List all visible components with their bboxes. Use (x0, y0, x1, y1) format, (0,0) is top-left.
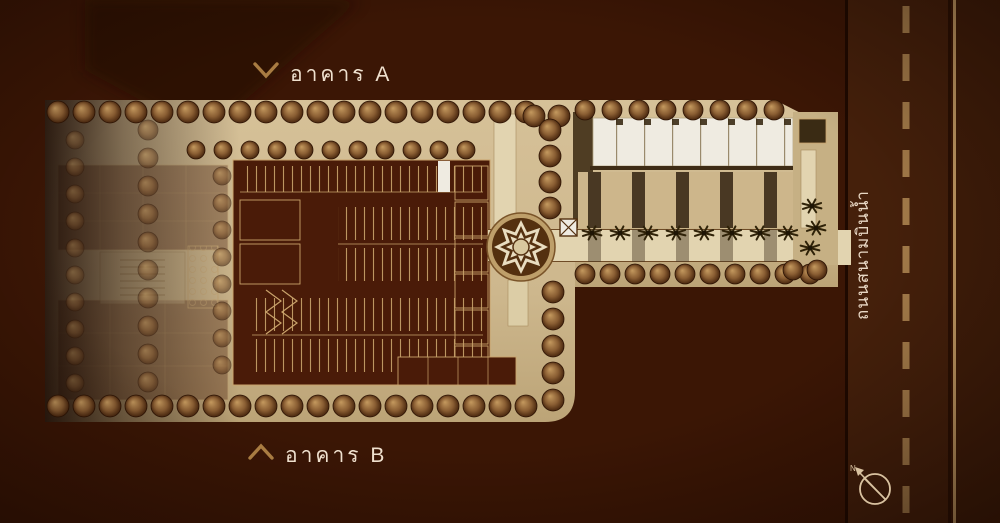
road-name-label: ถนนสนามบินน้ำ (850, 190, 872, 320)
vignette-overlay (0, 0, 1000, 523)
site-plan-poster: อาคาร A อาคาร B ถนนสนามบินน้ำ N (0, 0, 1000, 523)
site-plan-canvas: อาคาร A อาคาร B ถนนสนามบินน้ำ N (0, 0, 1000, 523)
compass-north-text: N (850, 464, 856, 473)
building-b-text: อาคาร B (285, 444, 387, 467)
building-a-text: อาคาร A (290, 63, 392, 86)
